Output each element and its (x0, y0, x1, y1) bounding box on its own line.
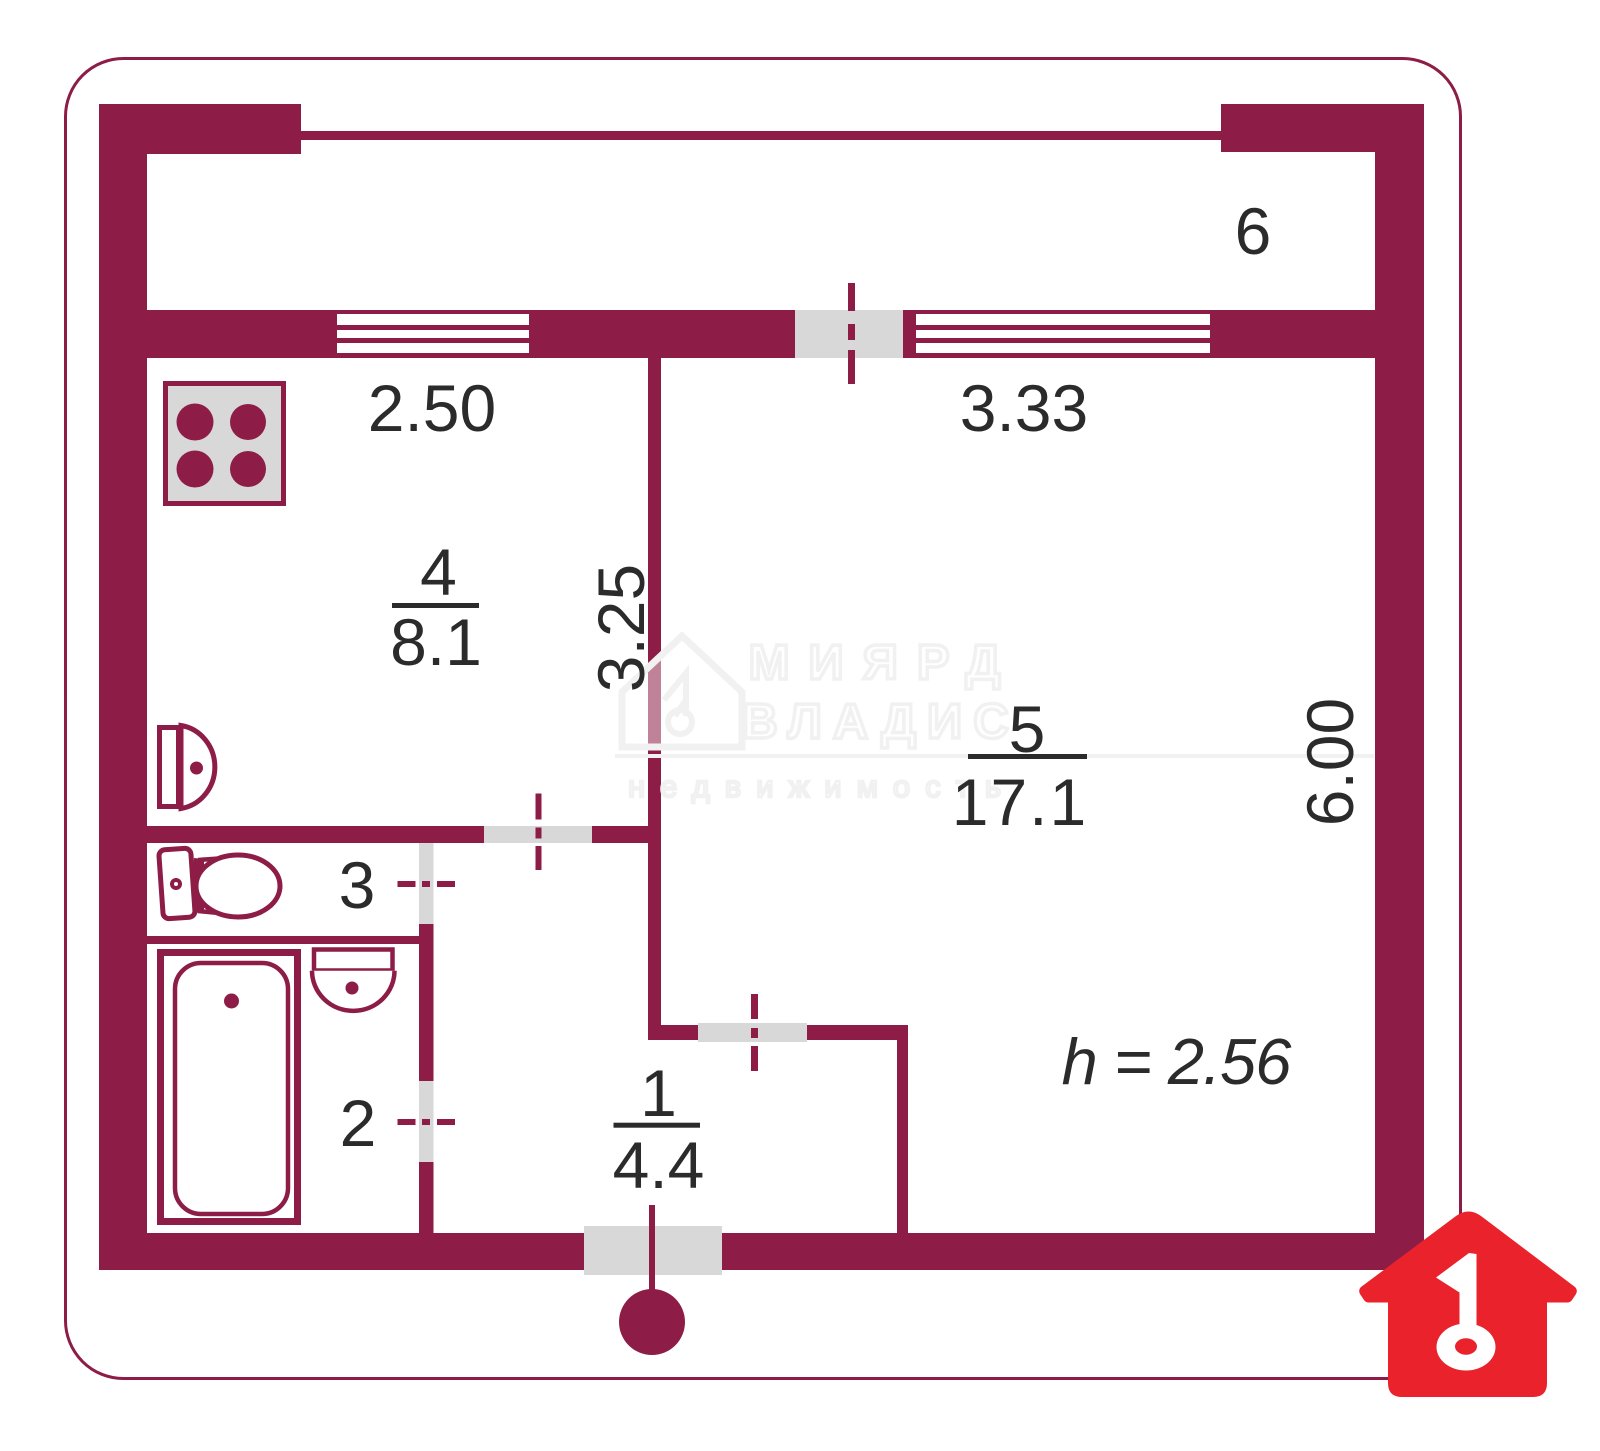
svg-text:h = 2.56: h = 2.56 (1062, 1025, 1293, 1098)
svg-text:ВЛАДИС: ВЛАДИС (742, 695, 1019, 749)
svg-text:3.25: 3.25 (584, 564, 658, 692)
svg-text:4: 4 (420, 535, 457, 609)
svg-text:8.1: 8.1 (390, 605, 482, 679)
svg-text:1: 1 (640, 1056, 677, 1130)
svg-text:2: 2 (340, 1086, 377, 1160)
svg-text:МИЯРД: МИЯРД (749, 636, 1020, 690)
svg-text:2.50: 2.50 (368, 371, 496, 445)
svg-text:3: 3 (339, 848, 376, 922)
svg-text:3.33: 3.33 (960, 371, 1088, 445)
svg-text:6.00: 6.00 (1293, 698, 1367, 826)
svg-text:4.4: 4.4 (613, 1128, 705, 1202)
svg-text:6: 6 (1235, 194, 1272, 268)
svg-text:17.1: 17.1 (952, 765, 1088, 839)
